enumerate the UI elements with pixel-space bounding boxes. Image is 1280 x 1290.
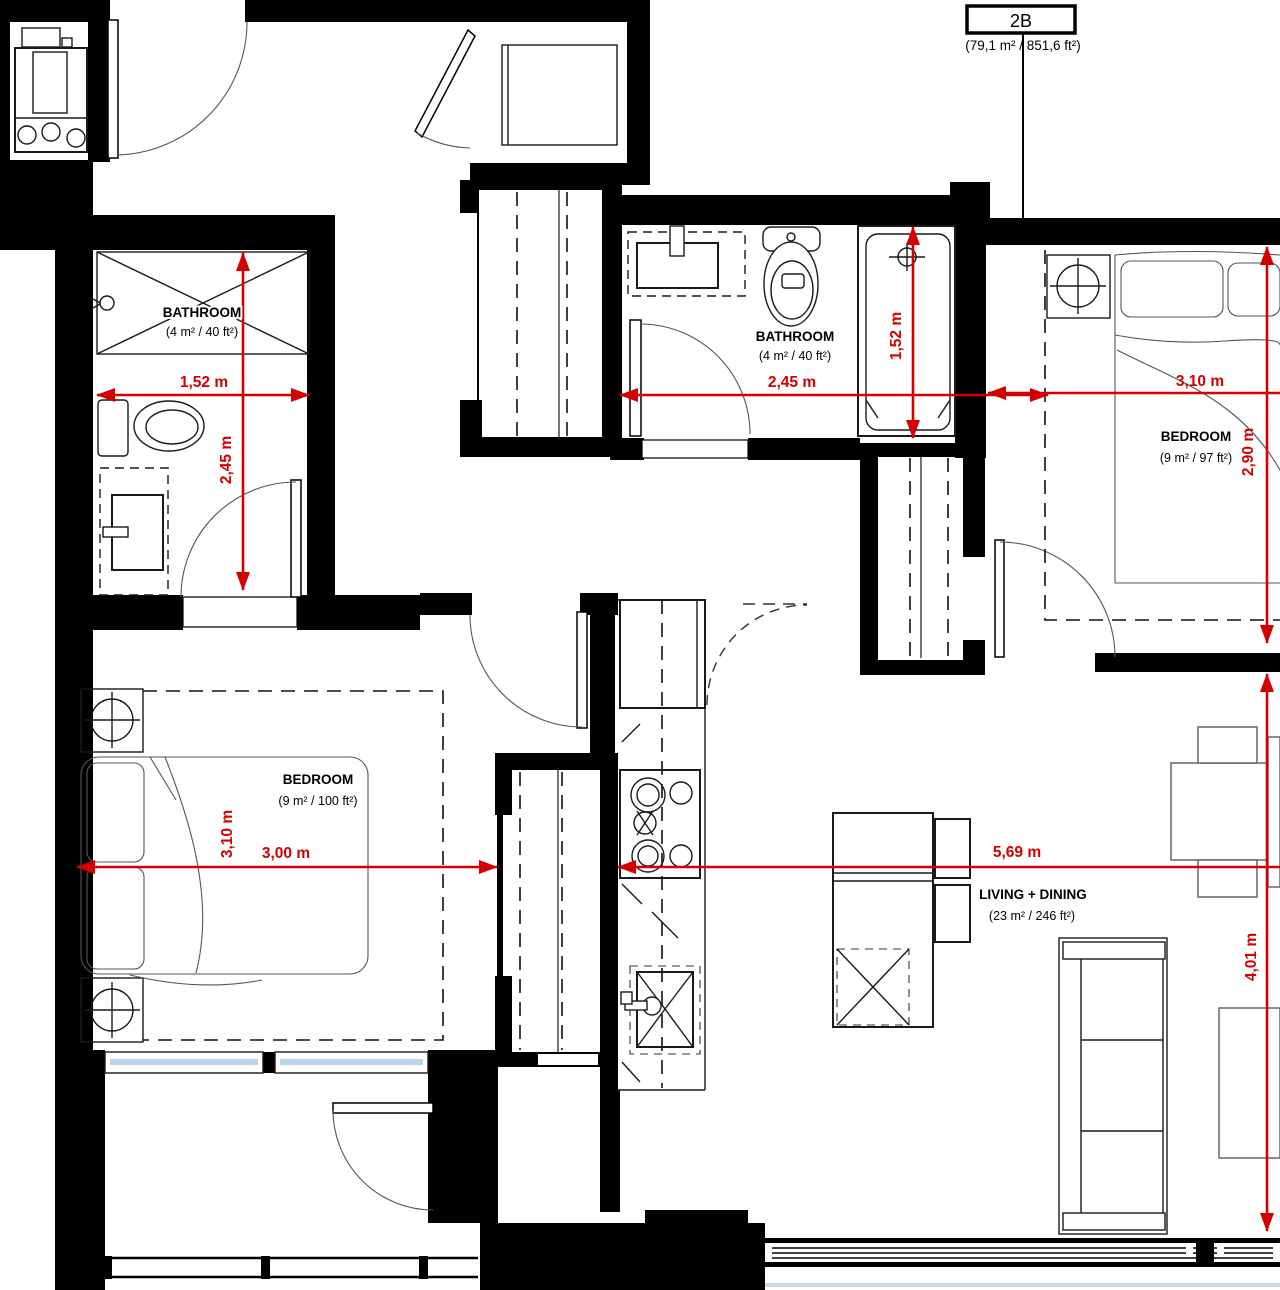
bedroom2-closet	[520, 770, 562, 1052]
bathroom2-dim-w: 2,45 m	[768, 374, 816, 391]
bedroom2-furniture	[81, 689, 368, 1042]
entry-door	[108, 20, 247, 158]
bathroom1-dim-h: 2,45 m	[218, 436, 235, 484]
bedroom2-door	[470, 612, 587, 728]
unit-area: (79,1 m² / 851,6 ft²)	[965, 38, 1081, 53]
bedroom1-dim-h: 2,90 m	[1240, 428, 1257, 476]
living-area: (23 m² / 246 ft²)	[989, 909, 1075, 923]
bathroom2-sink	[628, 226, 745, 296]
kitchen-opening	[707, 604, 807, 705]
bedroom1-closet	[910, 457, 948, 658]
bathroom2-threshold	[642, 440, 748, 458]
living-sliding-window	[765, 1238, 1280, 1287]
bathroom1-area: (4 m² / 40 ft²)	[166, 325, 238, 339]
floor-plan-page: 2B (79,1 m² / 851,6 ft²) BATHROOM (4 m² …	[0, 0, 1280, 1290]
sofa	[1059, 938, 1167, 1234]
bedroom2-dim-w: 3,00 m	[262, 845, 310, 862]
closet-gap	[538, 1054, 598, 1065]
bedroom1-label: BEDROOM (9 m² / 97 ft²) 3,10 m 2,90 m	[1160, 373, 1257, 476]
storage-shelf	[502, 45, 617, 145]
kitchen-island	[833, 813, 970, 1027]
balcony-door	[333, 1103, 433, 1210]
bathroom1-sink	[100, 468, 168, 595]
bathtub	[858, 226, 955, 436]
bathroom1-name: BATHROOM	[163, 305, 242, 320]
living-dim-h: 4,01 m	[1243, 933, 1260, 981]
bathroom2-toilet	[763, 227, 820, 326]
dimension-lines	[77, 227, 1280, 1231]
bathroom2-dim-h: 1,52 m	[888, 312, 905, 360]
bathroom1-threshold	[183, 597, 297, 627]
bathroom2-door	[630, 320, 750, 436]
kitchen	[618, 600, 705, 1090]
bathroom2-name: BATHROOM	[756, 329, 835, 344]
bathroom1-toilet	[98, 400, 204, 456]
bedroom1-furniture	[1047, 252, 1280, 584]
bedroom2-name: BEDROOM	[283, 772, 354, 787]
bedroom1-dim-w: 3,10 m	[1176, 373, 1224, 390]
bedroom1-door	[995, 540, 1115, 657]
bedroom2-label: BEDROOM (9 m² / 100 ft²) 3,00 m 3,10 m	[219, 772, 358, 862]
floor-plan: 2B (79,1 m² / 851,6 ft²) BATHROOM (4 m² …	[0, 0, 1280, 1290]
bathroom2-area: (4 m² / 40 ft²)	[759, 349, 831, 363]
bedroom1-name: BEDROOM	[1161, 429, 1232, 444]
bedroom1-area: (9 m² / 97 ft²)	[1160, 451, 1232, 465]
bathroom1-dim-w: 1,52 m	[180, 374, 228, 391]
storage-door	[415, 30, 475, 148]
bathroom1-door	[181, 480, 301, 597]
hall-wardrobe	[478, 190, 567, 440]
tv-stand	[1219, 1008, 1280, 1158]
living-name: LIVING + DINING	[979, 887, 1087, 902]
dining-table	[1171, 727, 1280, 897]
balcony-railing	[103, 1256, 478, 1279]
bedroom2-dim-h: 3,10 m	[219, 810, 236, 858]
bathroom2-label: BATHROOM (4 m² / 40 ft²) 2,45 m 1,52 m	[756, 312, 905, 391]
bedroom2-area: (9 m² / 100 ft²)	[278, 794, 357, 808]
walls	[0, 0, 1280, 1290]
unit-code: 2B	[1010, 11, 1032, 31]
living-dim-w: 5,69 m	[993, 844, 1041, 861]
bedroom2-boundary	[143, 691, 443, 1040]
washing-machine	[15, 28, 87, 152]
